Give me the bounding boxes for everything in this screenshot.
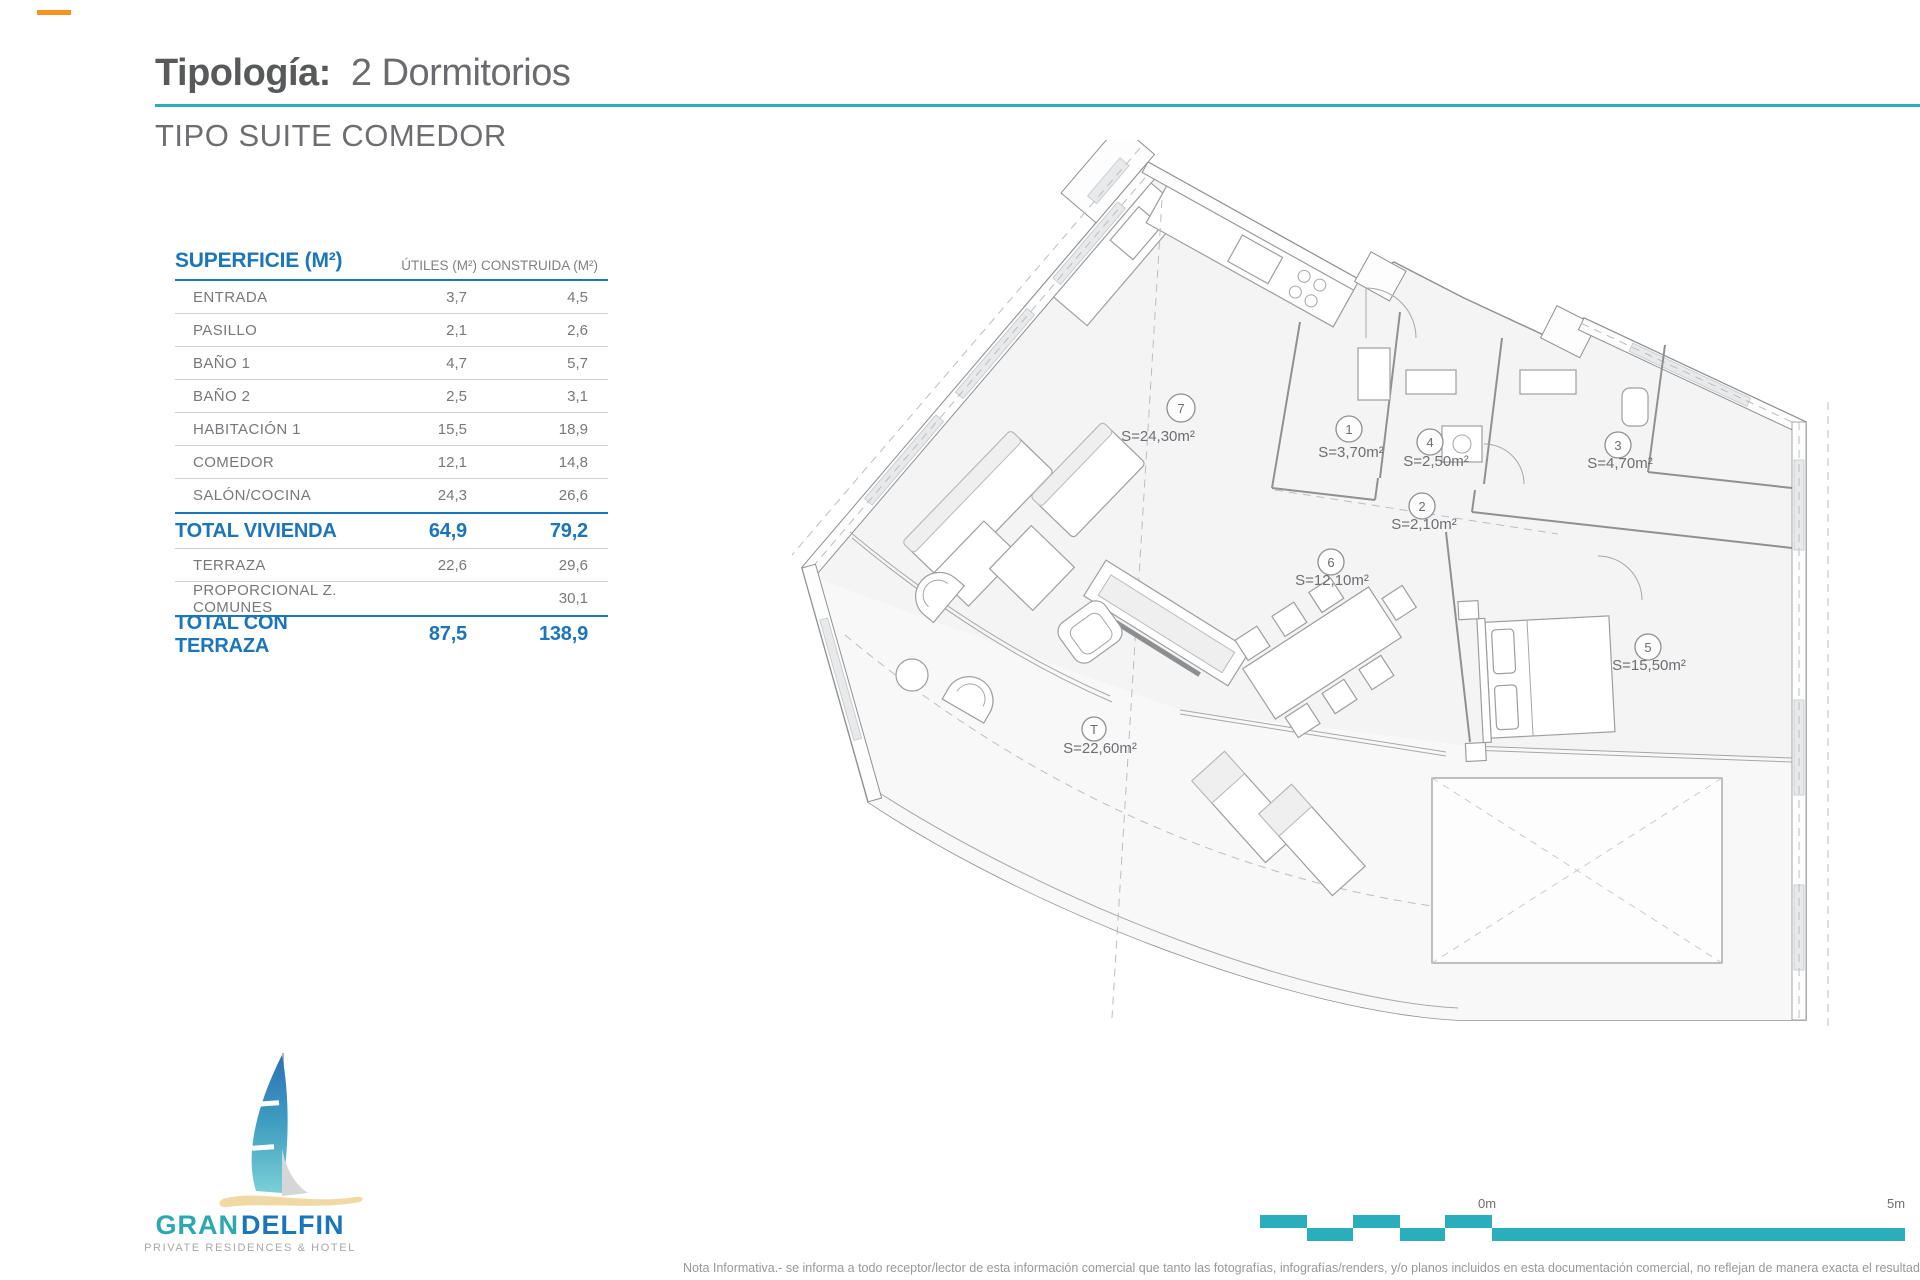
room-1-area: S=3,70m²	[1318, 444, 1383, 461]
row-construida: 26,6	[467, 487, 588, 504]
row-label: SALÓN/COCINA	[175, 487, 377, 504]
surface-table: SUPERFICIE (M²) ÚTILES (M²) CONSTRUIDA (…	[175, 249, 608, 652]
room-4-area: S=2,50m²	[1403, 453, 1468, 470]
col-header-superficie: SUPERFICIE (M²)	[175, 249, 377, 273]
table-row-terraza: TERRAZA 22,6 29,6	[175, 549, 608, 582]
logo-delfin: DELFIN	[241, 1210, 345, 1240]
floor-plan: 7 S=24,30m² 1 S=3,70m² 4 S=2,50m² 3 S=4,…	[760, 140, 1850, 1040]
total-construida: 79,2	[467, 520, 588, 543]
room-6-area: S=12,10m²	[1295, 572, 1369, 589]
nightstand	[1465, 742, 1486, 761]
title-divider	[155, 104, 1920, 107]
room-t-area: S=22,60m²	[1063, 740, 1137, 757]
page-title: Tipología: 2 Dormitorios	[155, 52, 570, 95]
room-t-number: T	[1090, 722, 1098, 737]
total-label: TOTAL VIVIENDA	[175, 520, 377, 543]
room-3-number: 3	[1614, 438, 1621, 453]
room-2-number: 2	[1418, 499, 1425, 514]
side-table	[896, 659, 928, 691]
logo-wordmark: GRANDELFIN	[140, 1210, 360, 1241]
col-header-utiles: ÚTILES (M²)	[377, 258, 477, 273]
row-construida: 14,8	[467, 454, 588, 471]
nightstand	[1458, 601, 1479, 620]
row-utiles: 22,6	[377, 557, 467, 574]
logo-sail-icon	[205, 1053, 365, 1208]
total-vivienda-row: TOTAL VIVIENDA 64,9 79,2	[175, 512, 608, 549]
table-header-row: SUPERFICIE (M²) ÚTILES (M²) CONSTRUIDA (…	[175, 249, 608, 281]
table-row: HABITACIÓN 1 15,5 18,9	[175, 413, 608, 446]
logo-gran: GRAN	[156, 1210, 240, 1240]
col-header-construida: CONSTRUIDA (M²)	[477, 258, 598, 273]
row-utiles: 4,7	[377, 355, 467, 372]
room-2-area: S=2,10m²	[1391, 516, 1456, 533]
row-label: BAÑO 1	[175, 355, 377, 372]
row-label: HABITACIÓN 1	[175, 421, 377, 438]
right-facade-wall	[1792, 422, 1806, 1020]
row-label: ENTRADA	[175, 289, 377, 306]
row-construida: 5,7	[467, 355, 588, 372]
room-5-area: S=15,50m²	[1612, 657, 1686, 674]
row-utiles: 2,5	[377, 388, 467, 405]
row-label: BAÑO 2	[175, 388, 377, 405]
room-4-number: 4	[1426, 435, 1433, 450]
legal-note: Nota Informativa.- se informa a todo rec…	[683, 1261, 1920, 1275]
room-3-area: S=4,70m²	[1587, 455, 1652, 472]
table-row: ENTRADA 3,7 4,5	[175, 281, 608, 314]
typology-label: Tipología:	[155, 52, 331, 94]
void-x-area	[1432, 778, 1722, 963]
row-label: PASILLO	[175, 322, 377, 339]
scale-zero-label: 0m	[1478, 1196, 1496, 1211]
total-label: TOTAL CON TERRAZA	[175, 612, 377, 658]
row-construida: 4,5	[467, 289, 588, 306]
table-row-comunes: PROPORCIONAL Z. COMUNES 30,1	[175, 582, 608, 615]
row-utiles: 24,3	[377, 487, 467, 504]
room-1-number: 1	[1345, 422, 1352, 437]
row-utiles: 2,1	[377, 322, 467, 339]
row-construida: 3,1	[467, 388, 588, 405]
corner-accent-mark	[37, 10, 71, 15]
row-construida: 30,1	[467, 590, 588, 607]
table-row: BAÑO 1 4,7 5,7	[175, 347, 608, 380]
row-label: TERRAZA	[175, 557, 377, 574]
row-utiles: 15,5	[377, 421, 467, 438]
table-row: PASILLO 2,1 2,6	[175, 314, 608, 347]
row-utiles: 12,1	[377, 454, 467, 471]
row-construida: 29,6	[467, 557, 588, 574]
scale-five-label: 5m	[1887, 1196, 1905, 1211]
table-row: BAÑO 2 2,5 3,1	[175, 380, 608, 413]
scale-bar: 0m 5m	[1250, 1196, 1910, 1251]
row-construida: 18,9	[467, 421, 588, 438]
scale-segments	[1260, 1215, 1905, 1241]
total-utiles: 87,5	[377, 623, 467, 646]
row-utiles: 3,7	[377, 289, 467, 306]
row-label: COMEDOR	[175, 454, 377, 471]
room-5-number: 5	[1644, 640, 1651, 655]
row-construida: 2,6	[467, 322, 588, 339]
total-utiles: 64,9	[377, 520, 467, 543]
total-construida: 138,9	[467, 623, 588, 646]
page-subtitle: TIPO SUITE COMEDOR	[155, 118, 507, 154]
room-7-number: 7	[1177, 401, 1184, 416]
room-7-area: S=24,30m²	[1121, 428, 1195, 445]
logo-tagline: PRIVATE RESIDENCES & HOTEL	[140, 1242, 360, 1254]
row-label: PROPORCIONAL Z. COMUNES	[175, 582, 377, 616]
table-row: SALÓN/COCINA 24,3 26,6	[175, 479, 608, 512]
typology-value: 2 Dormitorios	[351, 52, 570, 94]
room-6-number: 6	[1327, 555, 1334, 570]
table-row: COMEDOR 12,1 14,8	[175, 446, 608, 479]
total-terraza-row: TOTAL CON TERRAZA 87,5 138,9	[175, 615, 608, 652]
